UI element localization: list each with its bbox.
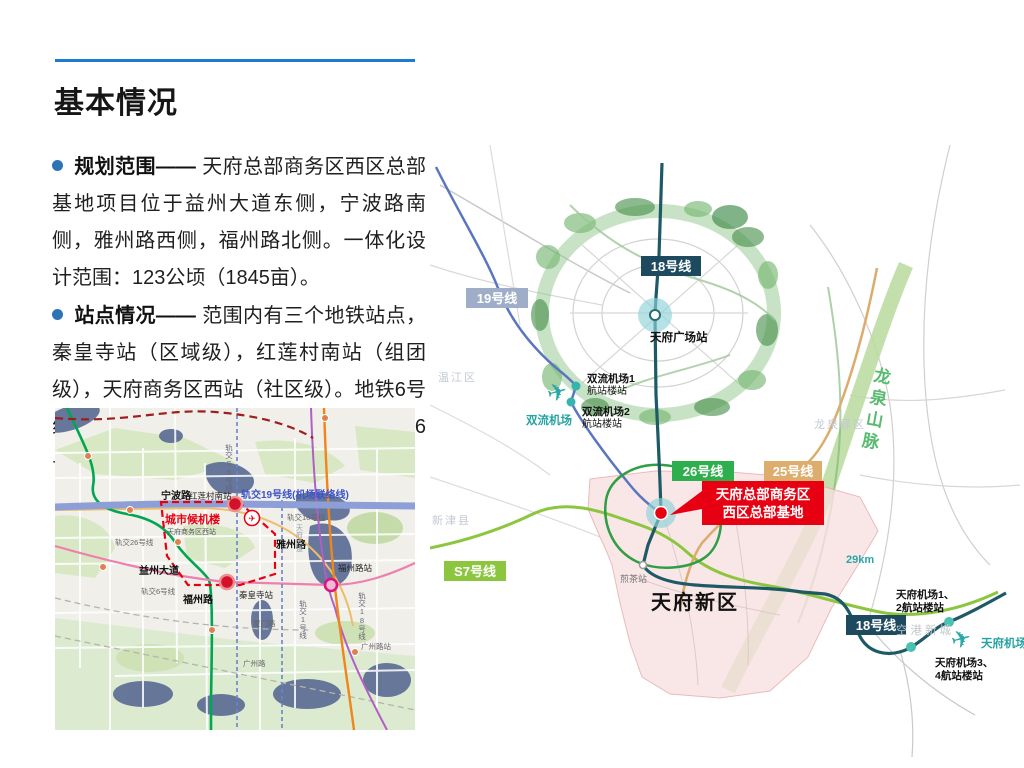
- badge-line25: 25号线: [764, 461, 822, 481]
- label-shuangliu-airport: 双流机场: [525, 413, 572, 427]
- label-rail1: 轨交1号线: [298, 599, 307, 640]
- label-rail19: 轨交19号线(机场联络线): [241, 488, 349, 501]
- page-title: 基本情况: [54, 78, 178, 122]
- bullet-planning-scope: 规划范围——天府总部商务区西区总部基地项目位于益州大道东侧，宁波路南侧，雅州路西…: [52, 149, 426, 297]
- svg-text:18号线: 18号线: [856, 618, 896, 633]
- svg-text:19号线: 19号线: [477, 291, 517, 306]
- badge-line-s7: S7号线: [444, 561, 506, 581]
- badge-line18-top: 18号线: [641, 256, 701, 276]
- project-label-line1: 天府总部商务区: [716, 486, 811, 502]
- svg-text:天府机场3、: 天府机场3、: [935, 656, 993, 669]
- label-xiamen-road: 厦门路: [253, 618, 276, 628]
- label-rail26: 轨交26号线: [115, 537, 154, 547]
- svg-text:航站楼站: 航站楼站: [582, 417, 622, 430]
- svg-text:18号线: 18号线: [651, 259, 691, 274]
- bullet-dot-icon: [52, 309, 63, 320]
- label-guangzhou-station: 广州路站: [361, 641, 391, 651]
- svg-text:双流机场2: 双流机场2: [581, 405, 630, 418]
- svg-text:26号线: 26号线: [683, 464, 723, 479]
- bullet-head: 站点情况——: [74, 305, 202, 327]
- big-map: 18号线 19号线 26号线 25号线 S7号线 18号线 天府总部商务区 西区…: [430, 145, 1024, 760]
- label-tianfu-west-station: 天府商务区西站: [167, 527, 216, 536]
- label-xinjin: 新津县: [432, 513, 471, 527]
- label-rail6: 轨交6号线: [141, 586, 176, 596]
- label-rail16: 轨交16号线: [287, 512, 326, 522]
- label-distance-29km: 29km: [846, 554, 874, 566]
- project-site-dot: [655, 507, 668, 520]
- tianfu-square-station-dot: [650, 310, 660, 320]
- plane-icon: ✈: [248, 514, 256, 524]
- label-rail18: 轨交18号线: [357, 591, 366, 641]
- bullet-dot-icon: [52, 160, 63, 171]
- badge-line19: 19号线: [466, 288, 528, 308]
- label-tianfu-square-station: 天府广场站: [650, 330, 708, 344]
- badge-line26: 26号线: [672, 461, 734, 481]
- label-rail-s5: 轨交S5号线: [224, 443, 233, 493]
- svg-text:4航站楼站: 4航站楼站: [935, 669, 983, 682]
- label-tianfu-avenue: 天府大道: [296, 524, 304, 553]
- label-fuzhou-station: 福州路站: [338, 563, 373, 573]
- station-fuzhoulu: [325, 579, 337, 591]
- label-jiancha-station: 煎茶站: [620, 573, 647, 584]
- svg-text:天府机场1、: 天府机场1、: [896, 588, 954, 601]
- label-longquanyi: 龙泉驿区: [814, 417, 866, 431]
- label-ningbo-road: 宁波路: [161, 489, 192, 502]
- label-konggang-new-city: 空港新城: [896, 623, 954, 637]
- svg-text:航站楼站: 航站楼站: [587, 384, 627, 397]
- svg-text:S7号线: S7号线: [454, 564, 496, 579]
- label-guangzhou-road: 广州路: [243, 658, 266, 668]
- label-fuzhou-road: 福州路: [182, 593, 214, 606]
- label-qinhuangsi-station: 秦皇寺站: [239, 590, 274, 600]
- station-qinhuangsi: [220, 575, 234, 589]
- slide: 基本情况 规划范围——天府总部商务区西区总部基地项目位于益州大道东侧，宁波路南侧…: [0, 0, 1024, 768]
- svg-text:双流机场1: 双流机场1: [586, 372, 635, 385]
- svg-text:2航站楼站: 2航站楼站: [896, 601, 944, 614]
- label-yizhou-avenue: 益州大道: [139, 564, 179, 577]
- label-tianfu-new-area: 天府新区: [651, 590, 739, 614]
- small-map: ✈ 宁波路 红莲村南站 轨交19号线(机场联络线) 轨交16号线 城市候机楼 天…: [55, 408, 415, 730]
- label-honglian-station: 红莲村南站: [189, 491, 232, 501]
- svg-text:25号线: 25号线: [773, 464, 813, 479]
- bullet-head: 规划范围——: [74, 156, 202, 178]
- label-wenjiang: 温江区: [438, 371, 477, 384]
- label-tianfu-airport: 天府机场: [981, 636, 1024, 650]
- project-label-line2: 西区总部基地: [723, 504, 804, 520]
- title-accent-line: [55, 59, 415, 62]
- label-city-terminal: 城市候机楼: [165, 512, 220, 526]
